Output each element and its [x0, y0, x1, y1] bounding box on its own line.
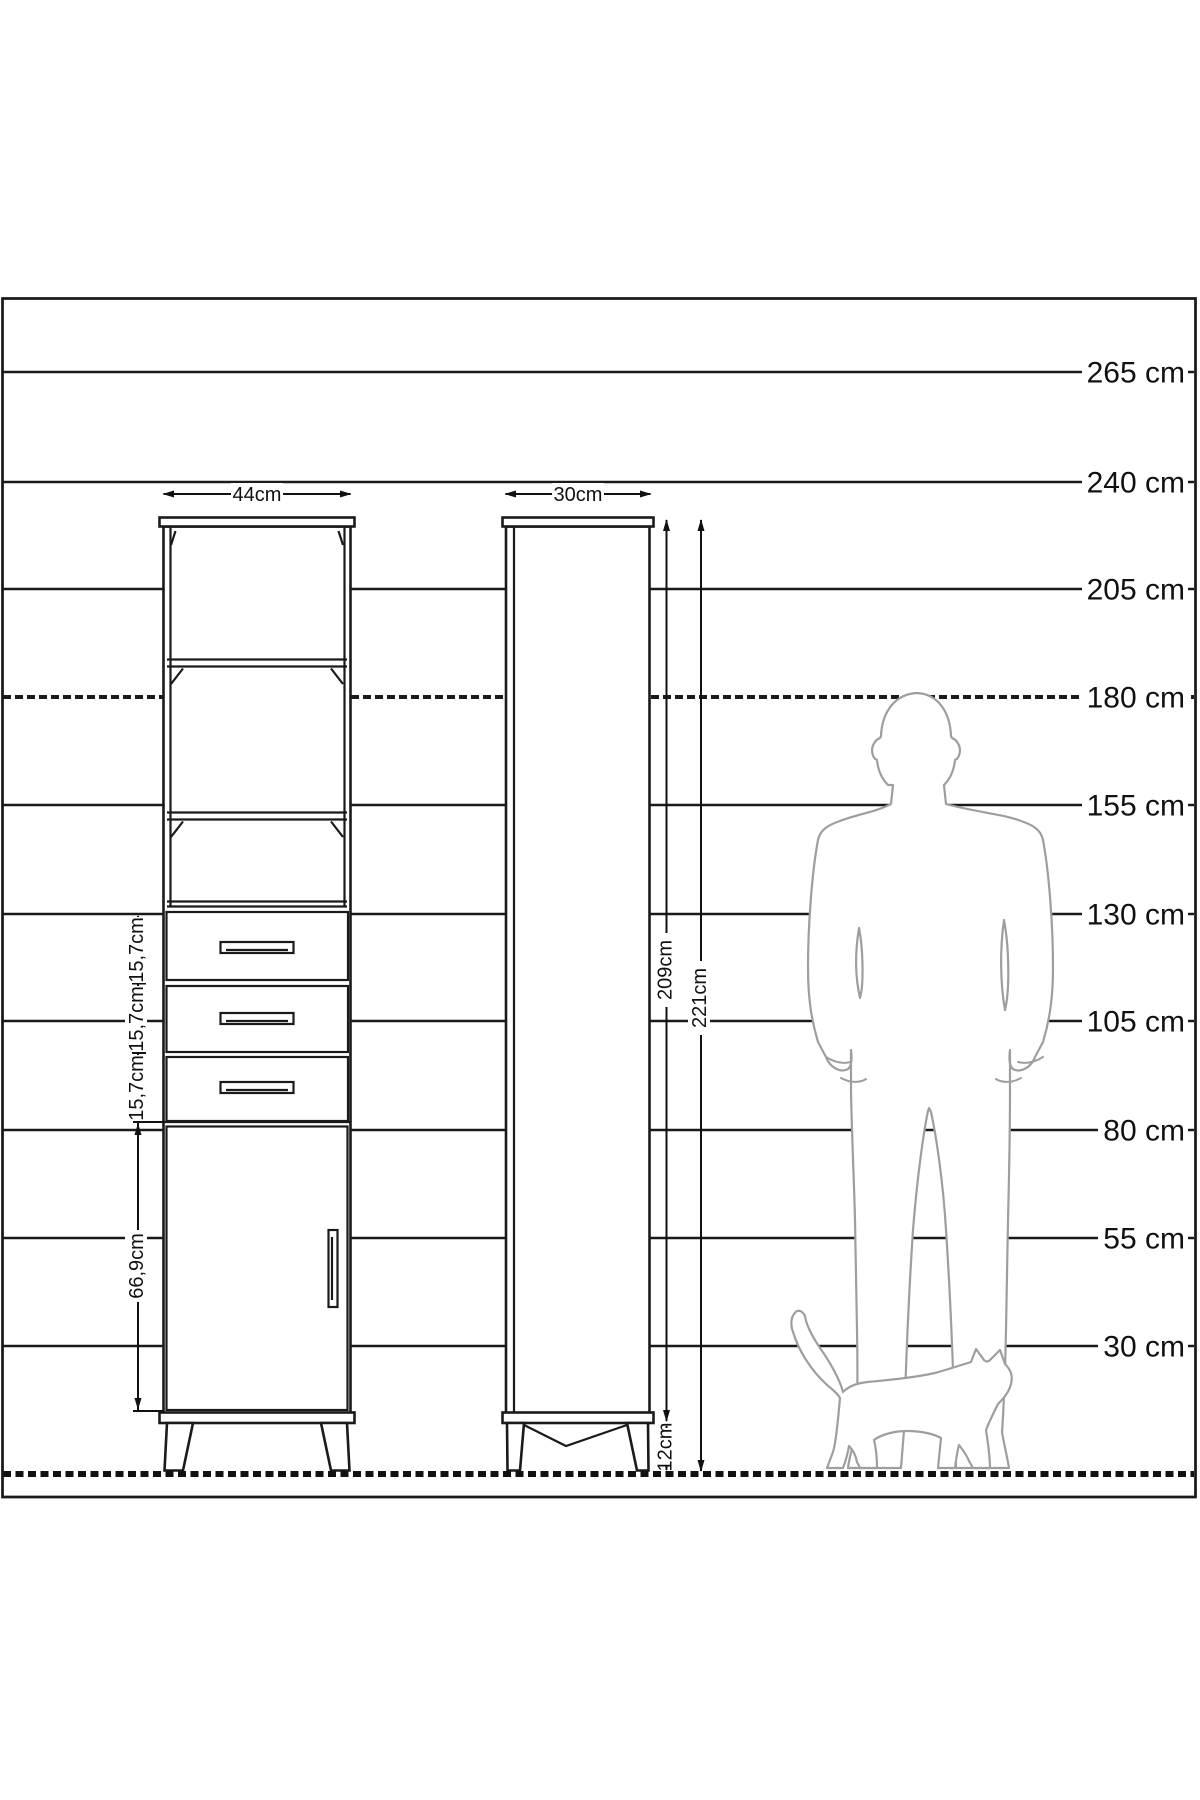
side-body	[506, 527, 650, 1414]
svg-text:44cm: 44cm	[233, 484, 282, 506]
ruler-label-80: 80 cm	[1103, 1115, 1185, 1148]
diagram-page: 265 cm 240 cm 205 cm 180 cm 155 cm 130 c…	[0, 0, 1200, 1800]
side-top-board	[503, 518, 654, 527]
man-left-arm-slit	[856, 928, 862, 998]
ruler-label-55: 55 cm	[1103, 1223, 1185, 1256]
svg-text:15,7cm: 15,7cm	[126, 1055, 148, 1121]
ruler-label-265: 265 cm	[1087, 357, 1185, 390]
dim-label-209: 209cm	[654, 933, 677, 1007]
svg-text:221cm: 221cm	[689, 968, 711, 1028]
ruler-label-30: 30 cm	[1103, 1331, 1185, 1364]
dim-label-30: 30cm	[552, 483, 604, 506]
svg-text:30cm: 30cm	[554, 484, 603, 506]
dim-label-drawer1: 15,7cm	[125, 917, 148, 983]
svg-text:209cm: 209cm	[655, 940, 677, 1000]
man-right-arm-slit	[1001, 920, 1008, 1010]
cabinet-front-view	[160, 518, 355, 1471]
ruler-label-155: 155 cm	[1087, 790, 1185, 823]
front-base-board	[160, 1413, 355, 1424]
ruler-label-105: 105 cm	[1087, 1006, 1185, 1039]
svg-text:66,9cm: 66,9cm	[126, 1233, 148, 1299]
svg-text:12cm: 12cm	[655, 1423, 677, 1472]
svg-text:15,7cm: 15,7cm	[126, 986, 148, 1052]
cabinet-side-view	[503, 518, 654, 1471]
dim-label-drawer3: 15,7cm	[125, 1055, 148, 1121]
dim-label-221: 221cm	[688, 961, 711, 1035]
side-base-board	[503, 1413, 654, 1424]
side-front-leg	[507, 1423, 524, 1471]
front-top-board	[160, 518, 355, 527]
ruler-label-180: 180 cm	[1087, 682, 1185, 715]
ruler-label-240: 240 cm	[1087, 467, 1185, 500]
dim-label-44: 44cm	[231, 483, 283, 506]
ruler-label-130: 130 cm	[1087, 899, 1185, 932]
dim-label-12: 12cm	[654, 1423, 677, 1472]
dim-label-door: 66,9cm	[125, 1230, 148, 1302]
svg-text:15,7cm: 15,7cm	[126, 917, 148, 983]
ruler-label-205: 205 cm	[1087, 574, 1185, 607]
dim-label-drawer2: 15,7cm	[125, 986, 148, 1052]
height-comparison-diagram: 265 cm 240 cm 205 cm 180 cm 155 cm 130 c…	[0, 0, 1200, 1800]
